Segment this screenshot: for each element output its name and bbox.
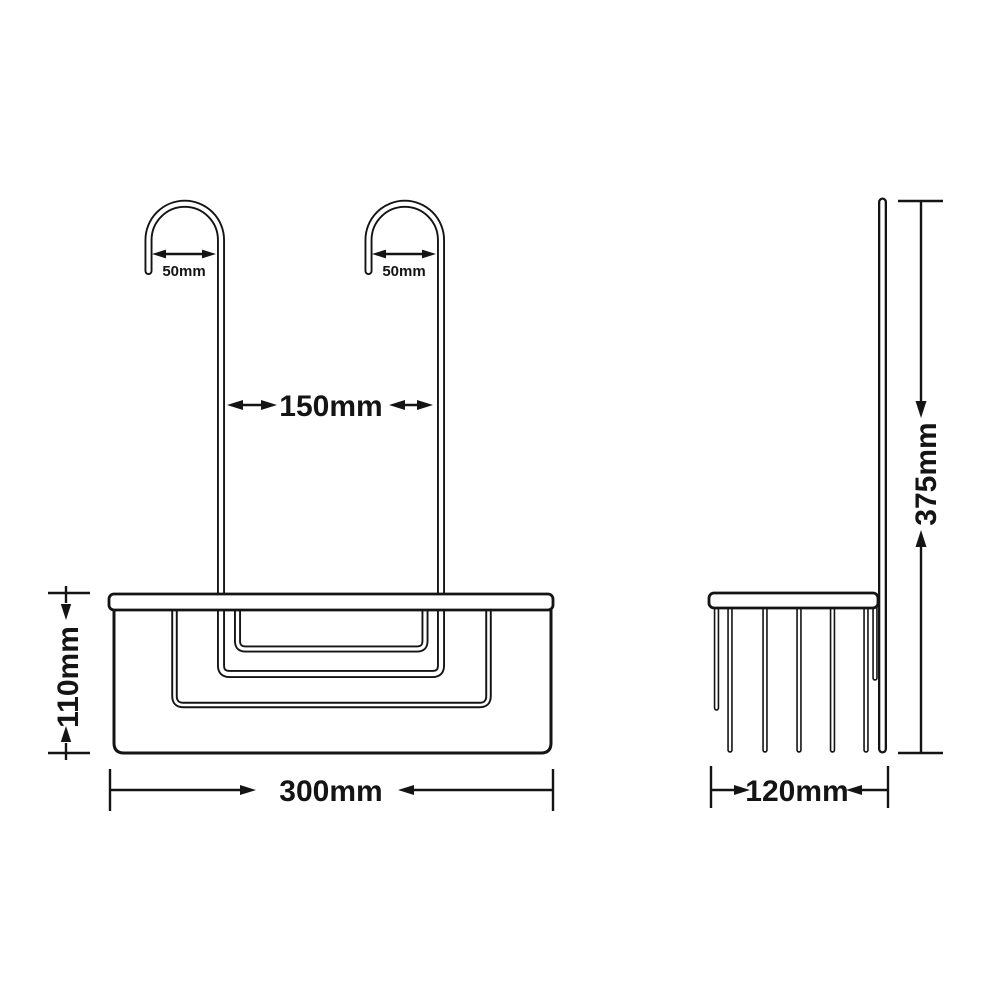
dim-label-right-hook-width: 50mm: [382, 263, 425, 280]
arrowhead-right-icon: [240, 785, 256, 795]
basket-rim: [109, 594, 553, 610]
dim-overall-height: 375mm: [898, 201, 943, 753]
side-wires: [717, 603, 876, 750]
arrowhead-down-icon: [916, 401, 927, 418]
dim-basket-height: 110mm: [48, 586, 90, 760]
dim-label-basket-depth: 120mm: [745, 775, 848, 808]
arrowhead-left-icon: [227, 400, 243, 410]
dimension-drawing: 50mm 50mm 150mm 110mm 300mm: [0, 0, 1000, 1000]
dim-basket-depth: 120mm: [711, 766, 888, 808]
arrowhead-left-icon: [389, 400, 405, 410]
drawing-canvas: 50mm 50mm 150mm 110mm 300mm: [0, 0, 1000, 1000]
dim-right-hook-width: 50mm: [372, 250, 436, 280]
arrowhead-right-icon: [202, 250, 216, 259]
dim-left-hook-width: 50mm: [152, 250, 216, 280]
side-view: [709, 202, 883, 750]
arrowhead-right-icon: [261, 400, 277, 410]
side-rim: [709, 593, 878, 608]
dim-label-overall-height: 375mm: [910, 422, 943, 525]
arrowhead-down-icon: [61, 604, 71, 620]
dim-label-basket-width: 300mm: [279, 775, 382, 808]
arrowhead-up-icon: [916, 530, 927, 547]
arrowhead-left-icon: [398, 785, 414, 795]
dim-label-left-hook-width: 50mm: [162, 263, 205, 280]
dim-hook-spacing: 150mm: [227, 390, 433, 423]
front-view: [109, 204, 553, 753]
dim-label-hook-spacing: 150mm: [279, 390, 382, 423]
dim-basket-width: 300mm: [110, 769, 553, 811]
arrowhead-left-icon: [372, 250, 386, 259]
arrowhead-right-icon: [422, 250, 436, 259]
arrowhead-right-icon: [417, 400, 433, 410]
arrowhead-left-icon: [152, 250, 166, 259]
dim-label-basket-height: 110mm: [52, 626, 85, 728]
